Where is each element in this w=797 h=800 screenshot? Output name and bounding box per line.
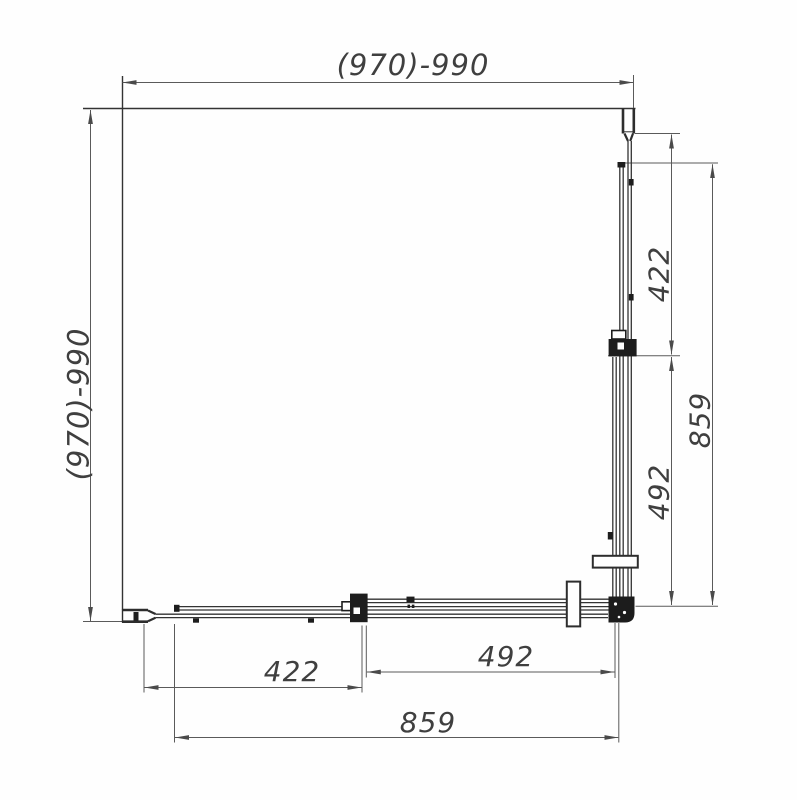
dim-label-bottom-fixed: 422 — [264, 655, 320, 688]
door-end-cap-right — [618, 162, 626, 168]
screw-dot — [618, 616, 621, 619]
bottom-glass-assembly — [122, 582, 615, 627]
screw-dot — [623, 611, 626, 614]
sliding-door-right — [613, 168, 623, 616]
dim-label-bottom-door: 492 — [478, 640, 534, 673]
panel-clamp-right — [609, 331, 637, 357]
shower-enclosure-plan-drawing: (970)-990 (970)-990 422 492 859 422 492 … — [0, 0, 797, 800]
dim-label-right-fixed: 422 — [643, 246, 676, 302]
profile-clamp-bottom — [134, 612, 139, 621]
dim-label-bottom-total: 859 — [400, 706, 456, 739]
dim-label-right-door: 492 — [643, 464, 676, 520]
door-end-cap-bottom — [174, 605, 180, 612]
dim-label-left-depth: (970)-990 — [62, 328, 96, 481]
wall-profile-right — [623, 108, 634, 141]
door-handle-bottom — [567, 582, 580, 627]
dims-bottom-side — [144, 623, 619, 743]
sliding-door-bottom — [180, 599, 616, 610]
corner-bracket — [609, 597, 635, 623]
door-handle-right — [593, 556, 638, 568]
glass-clips-right — [608, 179, 634, 540]
wall-profile-bottom — [122, 609, 156, 623]
dim-label-right-total: 859 — [684, 392, 717, 448]
technical-drawing-canvas: (970)-990 (970)-990 422 492 859 422 492 … — [0, 0, 797, 800]
screw-dot — [614, 602, 617, 605]
right-glass-assembly — [593, 108, 638, 615]
dims-right-side — [608, 134, 718, 607]
fixed-panel-right — [628, 141, 631, 608]
dim-label-top-width: (970)-990 — [337, 48, 490, 82]
fixed-panel-bottom — [156, 614, 609, 617]
wall-outline — [83, 76, 636, 610]
